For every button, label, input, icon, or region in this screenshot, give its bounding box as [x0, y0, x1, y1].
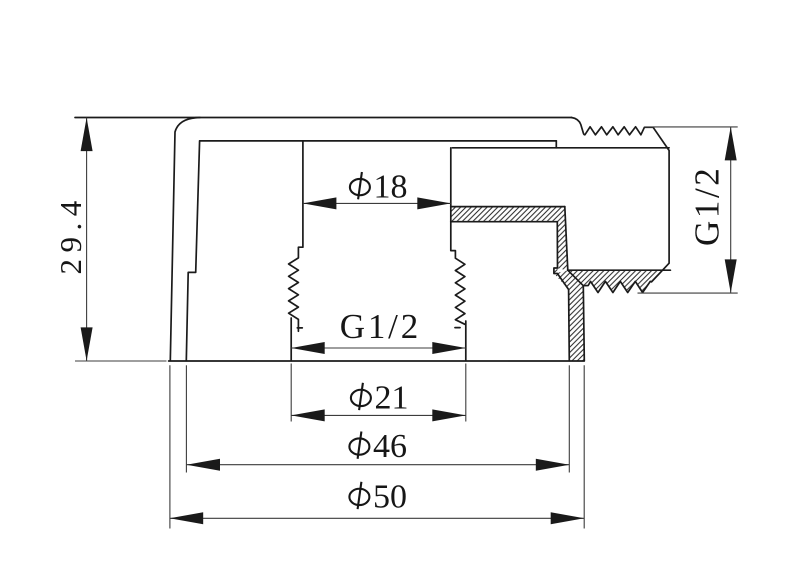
svg-text:46: 46 — [373, 428, 407, 465]
svg-text:G1/2: G1/2 — [688, 166, 727, 246]
svg-text:50: 50 — [373, 478, 407, 515]
svg-text:21: 21 — [375, 379, 409, 416]
svg-text:18: 18 — [374, 169, 408, 206]
svg-text:G1/2: G1/2 — [340, 307, 421, 346]
svg-text:29.4: 29.4 — [53, 194, 88, 274]
